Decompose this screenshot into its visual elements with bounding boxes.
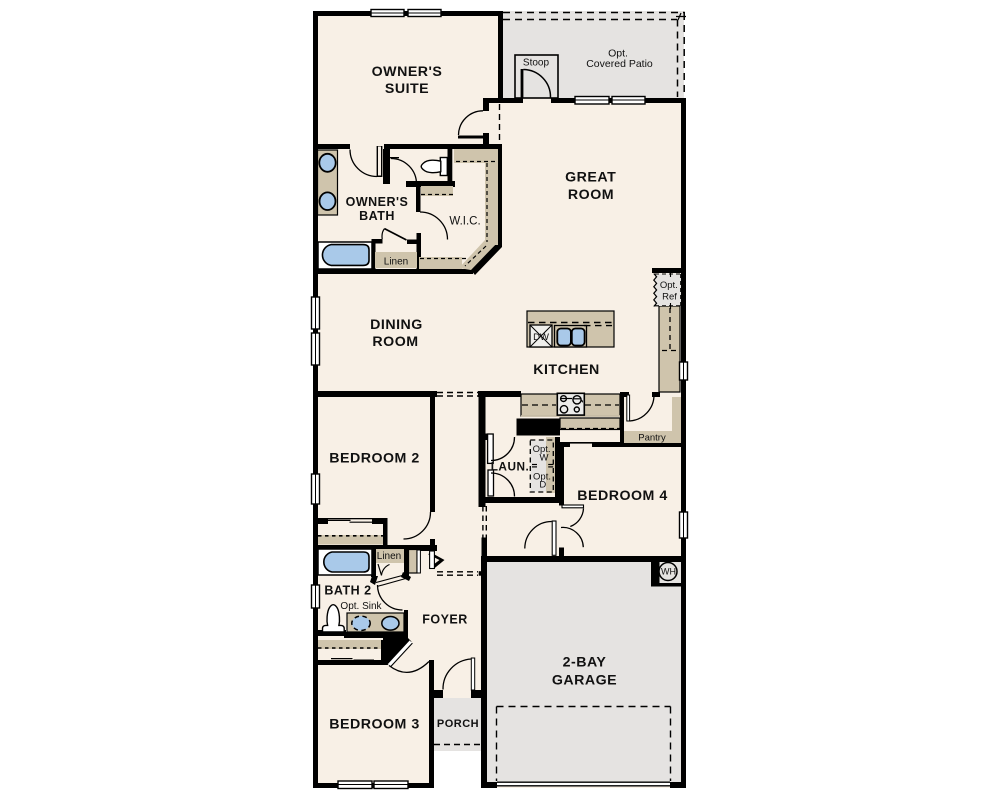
svg-text:WH: WH — [661, 567, 676, 577]
svg-text:BATH 2: BATH 2 — [324, 584, 371, 598]
svg-text:DW: DW — [533, 332, 549, 343]
svg-text:Linen: Linen — [377, 551, 401, 562]
svg-text:W.I.C.: W.I.C. — [449, 216, 480, 228]
svg-text:Opt.: Opt. — [660, 280, 678, 291]
svg-text:GARAGE: GARAGE — [552, 672, 617, 688]
svg-text:SUITE: SUITE — [385, 81, 429, 97]
svg-text:Covered Patio: Covered Patio — [586, 58, 653, 70]
svg-text:ROOM: ROOM — [372, 334, 418, 350]
svg-text:BEDROOM 2: BEDROOM 2 — [329, 450, 419, 466]
svg-text:Stoop: Stoop — [523, 58, 550, 69]
svg-text:OWNER'S: OWNER'S — [346, 195, 409, 209]
svg-text:OWNER'S: OWNER'S — [372, 64, 443, 80]
svg-text:D: D — [539, 479, 546, 490]
svg-text:Linen: Linen — [384, 257, 408, 268]
svg-text:GREAT: GREAT — [565, 170, 616, 186]
svg-text:BATH: BATH — [359, 209, 395, 223]
svg-text:KITCHEN: KITCHEN — [533, 362, 600, 378]
svg-text:LAUN.: LAUN. — [491, 460, 530, 474]
svg-text:ROOM: ROOM — [568, 187, 614, 203]
svg-text:Ref: Ref — [662, 292, 677, 303]
svg-text:Opt. Sink: Opt. Sink — [340, 601, 382, 612]
svg-text:Pantry: Pantry — [638, 433, 666, 444]
svg-text:2-BAY: 2-BAY — [563, 654, 607, 670]
svg-text:BEDROOM 4: BEDROOM 4 — [577, 488, 667, 504]
svg-text:DINING: DINING — [370, 317, 423, 333]
svg-text:FOYER: FOYER — [422, 613, 468, 627]
svg-text:PORCH: PORCH — [437, 718, 479, 730]
svg-text:BEDROOM 3: BEDROOM 3 — [329, 717, 419, 733]
svg-text:W: W — [540, 452, 549, 463]
